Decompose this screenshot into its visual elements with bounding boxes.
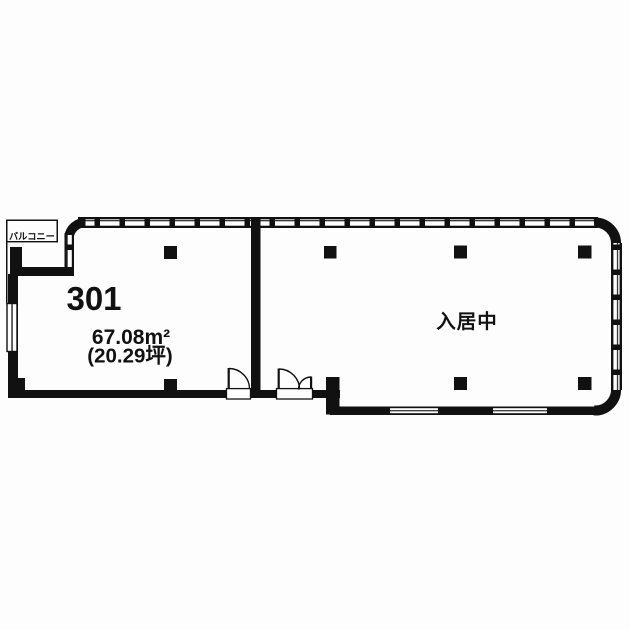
pillar [164,246,177,259]
door-threshold [227,389,251,399]
bottom-wall-left [8,390,256,398]
top-window-wall [78,217,598,228]
door-leaf-child [310,377,312,390]
balcony-window [65,233,75,269]
pillar [454,377,467,390]
balcony-outline-top [6,220,58,222]
door-leaf [228,368,230,389]
pillar [454,246,467,259]
pillar [578,246,592,259]
divider-wall [251,217,261,398]
balcony-label: バルコニー [9,232,55,242]
door-leaf-main [278,369,280,390]
right-window-wall [611,243,622,390]
bottom-window-2 [493,408,547,413]
door-threshold [277,389,313,399]
pillar [164,379,177,392]
unit-area-tsubo: (20.29坪) [87,345,172,368]
adjacent-unit-labels: 入居中 [436,310,498,333]
left-wall-window [7,304,17,352]
pillar [324,246,337,259]
balcony-wall-horizontal [10,267,74,276]
floor-plan-canvas: バルコニー 301 67.08m² (20.29坪) 入居中 [0,0,630,630]
balcony-outline-left [6,220,8,304]
occupied-status-label: 入居中 [436,310,498,333]
balcony-outline-right [57,220,59,243]
corner-pilaster [13,378,25,392]
bottom-window-wall [330,407,598,416]
pillar [578,377,592,390]
unit-number: 301 [66,280,121,317]
bottom-window-1 [390,408,438,413]
